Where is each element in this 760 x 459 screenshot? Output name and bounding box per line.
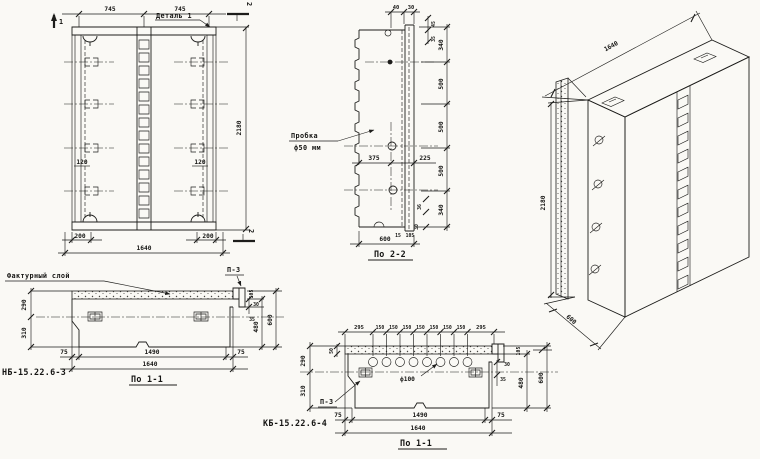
section-2-2: Пробка ф50 мм 40 30 45 35 340 500 500 50… xyxy=(289,5,450,260)
section-2-2-outline xyxy=(355,25,414,231)
plug-hole-filled xyxy=(388,60,393,65)
lifting-loop-icon xyxy=(83,36,205,222)
detail-leader xyxy=(200,20,210,27)
s11a-dim-1640: 1640 xyxy=(143,361,158,368)
hole-callout: ф100 xyxy=(400,375,415,383)
s11b-dim-75-right: 75 xyxy=(497,412,505,419)
s11b-hole-row xyxy=(369,358,473,367)
dim-120-right: 120 xyxy=(194,159,205,166)
drawing-canvas: 745 745 Деталь 1 1 2 2 2180 120 120 200 … xyxy=(0,0,760,459)
s11b-dim-310: 310 xyxy=(300,385,307,396)
iso-depth-dim xyxy=(544,297,625,350)
front-side-rails xyxy=(72,35,216,222)
iso-dim-2180: 2180 xyxy=(540,195,547,210)
s11b-dim-295-right: 295 xyxy=(476,325,486,331)
s22-dim-15: 15 xyxy=(395,233,401,239)
cut-mark-1: 1 xyxy=(59,18,64,26)
s11b-dim-150-4: 150 xyxy=(416,325,425,331)
iso-dim-1640: 1640 xyxy=(603,40,620,53)
isometric-view: 1640 2180 600 xyxy=(533,11,749,353)
s11b-dim-295-left: 295 xyxy=(354,325,364,331)
s11a-facing-strip xyxy=(72,291,233,299)
s11b-dim-30: 30 xyxy=(504,362,510,368)
s22-dim-30: 30 xyxy=(408,5,415,11)
s11a-dim-1490: 1490 xyxy=(145,349,160,356)
front-view: 745 745 Деталь 1 1 2 2 2180 120 120 200 … xyxy=(51,2,255,256)
s11b-dim-150-3: 150 xyxy=(403,325,412,331)
panel-mark-nb: НБ-15.22.6-3 xyxy=(2,367,66,377)
s11a-dim-480: 480 xyxy=(253,321,260,332)
s22-dim-500-2: 500 xyxy=(438,121,445,132)
front-top-dim-line xyxy=(62,14,226,27)
dim-2180: 2180 xyxy=(236,120,243,135)
iso-lifting-socket-right xyxy=(694,53,716,63)
s22-dim-35: 35 xyxy=(431,36,437,42)
s11b-dim-600: 600 xyxy=(538,372,545,383)
section-title-1-1-right: По 1-1 xyxy=(400,438,432,448)
s22-dim-40: 40 xyxy=(393,5,400,11)
dim-120-left: 120 xyxy=(76,159,87,166)
section-2-2-hidden xyxy=(402,27,409,229)
plate-callout-b: П-3 xyxy=(320,398,333,406)
s22-dim-225: 225 xyxy=(419,155,430,162)
front-view-outline xyxy=(72,27,216,230)
front-row-centerlines xyxy=(64,62,228,191)
s22-dim-30b: 30 xyxy=(414,224,420,230)
s11b-dim-1640: 1640 xyxy=(411,425,426,432)
s11b-dim-150-1: 150 xyxy=(376,325,385,331)
s11b-dim-150-2: 150 xyxy=(389,325,398,331)
front-height-dim-line xyxy=(216,27,249,230)
section-2-2-centerlines xyxy=(344,62,438,212)
iso-channel-keys xyxy=(678,95,688,289)
blueprint-sheet: 745 745 Деталь 1 1 2 2 2180 120 120 200 … xyxy=(0,0,760,459)
s11b-dim-290: 290 xyxy=(300,355,307,366)
s11a-dim-30: 30 xyxy=(253,302,259,308)
s11a-dim-105: 105 xyxy=(249,290,255,299)
layer-callout: Фактурный слой xyxy=(7,272,70,280)
s11a-body-outline xyxy=(72,299,233,347)
s11b-body-outline xyxy=(348,354,492,408)
s11b-dim-50: 50 xyxy=(329,348,335,354)
s11b-anchor-left xyxy=(359,368,372,377)
dim-1640-front: 1640 xyxy=(137,245,152,252)
s22-top-dim-line xyxy=(385,12,420,28)
s11b-facing-strip xyxy=(345,346,492,354)
s22-dim-500-1: 500 xyxy=(438,78,445,89)
s11b-dim-150-5: 150 xyxy=(430,325,439,331)
plate-callout-a: П-3 xyxy=(227,266,240,274)
s22-dim-45: 45 xyxy=(431,21,437,27)
s11b-dim-150-7: 150 xyxy=(457,325,466,331)
s22-dim-500-3: 500 xyxy=(438,165,445,176)
s11a-dim-600: 600 xyxy=(267,314,274,325)
iso-end-face xyxy=(588,100,625,317)
cut-mark-2-top: 2 xyxy=(245,2,253,7)
iso-top-face xyxy=(588,40,749,117)
s22-dim-105: 105 xyxy=(406,233,415,239)
s11b-dim-150-6: 150 xyxy=(443,325,452,331)
plug-callout-line2: ф50 мм xyxy=(294,144,321,152)
plug-hole-top xyxy=(385,30,391,36)
s11a-end-cap xyxy=(233,288,245,307)
s11b-dim-35: 35 xyxy=(500,377,506,383)
s11a-dim-290: 290 xyxy=(21,299,28,310)
front-anchor-brackets xyxy=(85,58,204,195)
iso-lifting-socket-left xyxy=(602,97,624,107)
dim-200-right: 200 xyxy=(202,233,213,240)
s11b-dim-1490: 1490 xyxy=(413,412,428,419)
s22-dim-375: 375 xyxy=(368,155,379,162)
s11b-dim-480: 480 xyxy=(518,377,525,388)
section-title-2-2: По 2-2 xyxy=(374,249,406,259)
s22-dim-36: 36 xyxy=(417,204,423,210)
dim-200-left: 200 xyxy=(74,233,85,240)
iso-facing-slab xyxy=(556,78,568,299)
iso-hole-1 xyxy=(595,136,603,144)
s11a-dim-310: 310 xyxy=(21,327,28,338)
s11a-anchor-left xyxy=(88,312,102,321)
dim-745-left: 745 xyxy=(104,6,115,13)
s22-dim-600: 600 xyxy=(379,236,390,243)
front-rail-hidden-lines xyxy=(85,40,203,218)
detail-callout: Деталь 1 xyxy=(156,12,192,20)
bottom-notch xyxy=(374,222,384,227)
s11a-dim-75-left: 75 xyxy=(60,349,68,356)
section-1-1-left: Фактурный слой П-3 290 310 30 35 105 480… xyxy=(2,266,284,385)
iso-hole-4 xyxy=(591,265,599,273)
s11b-anchor-right xyxy=(469,368,482,377)
section-title-1-1-left: По 1-1 xyxy=(131,374,163,384)
s11a-dim-75-right: 75 xyxy=(237,349,245,356)
cut-mark-1-arrow xyxy=(51,13,57,21)
panel-mark-kb: КБ-15.22.6-4 xyxy=(263,418,327,428)
iso-hole-3 xyxy=(592,223,600,231)
s11b-dim-105: 105 xyxy=(516,347,522,356)
s22-dim-340-bottom: 340 xyxy=(438,204,445,215)
s22-dim-340-top: 340 xyxy=(438,39,445,50)
front-channel-keys xyxy=(139,40,149,218)
s11b-dim-75-left: 75 xyxy=(334,412,342,419)
s11b-end-cap xyxy=(492,344,504,362)
s22-height-dim-line xyxy=(417,24,450,231)
iso-hole-2 xyxy=(594,180,602,188)
s11a-anchor-right xyxy=(194,312,208,321)
plug-callout-line1: Пробка xyxy=(291,132,318,140)
section-1-1-right: 295 150 150 150 150 150 150 150 295 ф100… xyxy=(263,325,558,449)
iso-dim-600: 600 xyxy=(564,314,577,327)
